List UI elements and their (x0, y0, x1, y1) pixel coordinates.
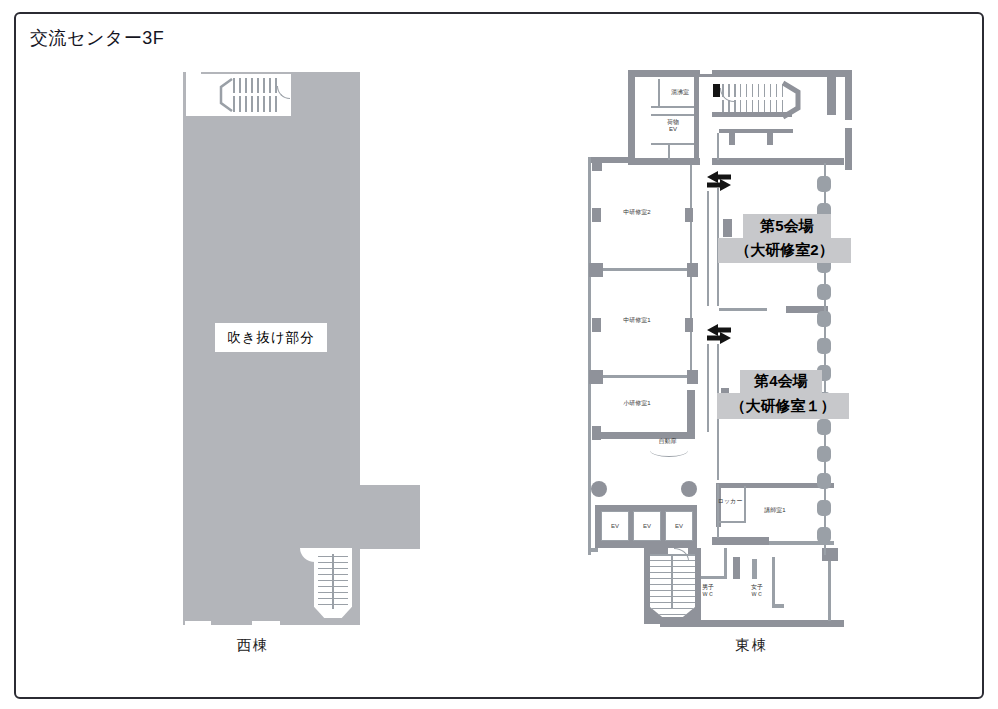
wall-segment (733, 557, 740, 579)
wall-segment (719, 521, 745, 523)
window-mullion (817, 419, 831, 435)
stair-landing-mark (713, 84, 720, 97)
window-mullion (817, 527, 831, 543)
wall-segment (597, 375, 692, 378)
wall-segment (687, 390, 695, 436)
wall-segment (597, 268, 692, 271)
wall-segment (717, 484, 719, 538)
page-title: 交流センター3F (30, 26, 164, 50)
wall-segment (707, 344, 709, 432)
window-mullion (817, 500, 831, 516)
window-mullion (817, 311, 831, 327)
double-arrow-icon (707, 171, 731, 191)
stair-treads (233, 78, 278, 93)
room-label-locker: ロッカー (714, 498, 746, 505)
wall-segment (772, 557, 775, 606)
room-label-hot-water: 湯沸室 (660, 89, 700, 96)
wall-segment (827, 77, 836, 115)
wall-segment (628, 77, 635, 164)
wall-segment (588, 548, 598, 552)
room-label-mid-training-1: 中研修室1 (607, 317, 667, 324)
wall-segment (651, 114, 694, 116)
round-column (591, 481, 607, 497)
wall-segment (712, 112, 792, 117)
elevator-1: EV (601, 511, 629, 541)
room-label-instructor: 講師室1 (755, 507, 795, 514)
venue5-label-line1: 第5会場 (743, 214, 831, 238)
auto-door-arc-icon (650, 444, 688, 457)
wall-segment (845, 128, 852, 170)
window-mullion (817, 446, 831, 462)
wall-segment (719, 308, 767, 311)
stair-chevron (218, 78, 233, 112)
pillar (687, 370, 698, 384)
venue5-label-line2: （大研修室2） (718, 238, 851, 263)
pillar (687, 263, 698, 277)
window-mullion (817, 473, 831, 489)
wall-segment (724, 548, 727, 578)
atrium-label: 吹き抜け部分 (215, 323, 327, 352)
pillar (592, 318, 601, 332)
pillar (685, 208, 693, 222)
wall-segment (651, 106, 694, 108)
wall-segment (707, 191, 709, 306)
wall-segment (828, 561, 831, 621)
elevator-3: EV (665, 511, 693, 541)
room-label-mens-wc: 男子 ＷＣ (695, 584, 721, 598)
pillar (592, 426, 601, 440)
room-label-cargo-ev: 荷物 EV (658, 119, 688, 133)
wall-segment (772, 604, 784, 608)
room-label-mid-training-2: 中研修室2 (607, 209, 667, 216)
wall-segment (628, 70, 852, 77)
pillar (723, 219, 732, 237)
pillar (592, 158, 602, 171)
stair-chevron (782, 80, 804, 120)
wall-segment (712, 537, 769, 545)
west-building-extension (359, 485, 420, 549)
window-mullion (817, 176, 831, 192)
wall-segment (717, 133, 719, 160)
elevator-2: EV (633, 511, 661, 541)
venue4-label-line2: （大研修室１） (717, 393, 849, 419)
stair-treads (233, 96, 278, 112)
wall-notch (700, 70, 712, 74)
pillar (589, 263, 603, 277)
wall-segment (668, 145, 670, 160)
wall-segment (651, 143, 694, 145)
west-building-name: 西棟 (205, 636, 301, 655)
round-column (681, 481, 697, 497)
wall-segment (752, 559, 757, 579)
pillar (589, 370, 603, 384)
window-mullion (817, 284, 831, 300)
double-arrow-icon (707, 324, 731, 344)
venue4-label-line1: 第4会場 (740, 370, 822, 393)
room-label-womens-wc: 女子 ＷＣ (744, 584, 770, 598)
east-building-name: 東棟 (704, 636, 800, 655)
wall-segment (845, 70, 852, 120)
wall-segment (767, 133, 773, 145)
wall-segment (628, 158, 700, 165)
pillar (592, 208, 601, 222)
pillar (685, 318, 693, 332)
window-mullion (817, 338, 831, 354)
wall-segment (588, 157, 591, 555)
wall-segment (729, 133, 735, 145)
page-border (14, 12, 984, 699)
room-label-small-training-1: 小研修室1 (607, 400, 667, 407)
